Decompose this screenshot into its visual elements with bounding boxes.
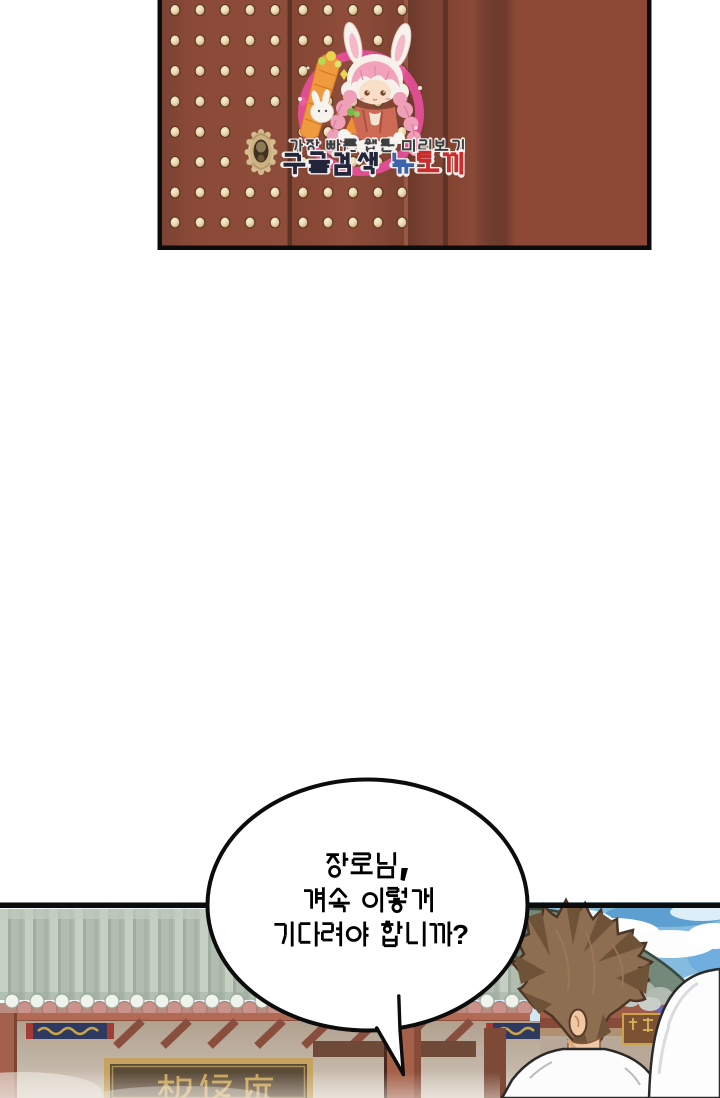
svg-text:?: ? (452, 919, 469, 950)
